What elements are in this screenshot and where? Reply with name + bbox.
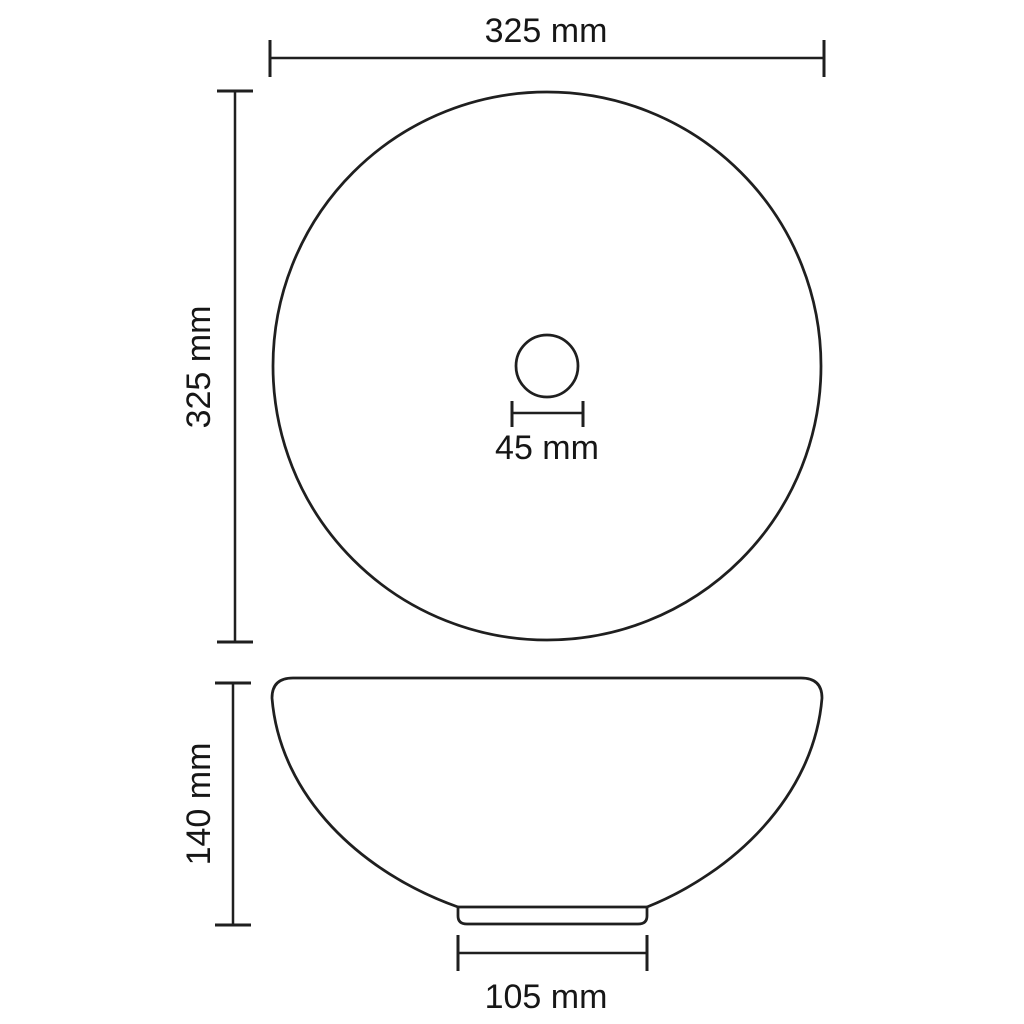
dimension-top-width: 325 mm (270, 12, 824, 77)
dimension-base-width: 105 mm (458, 935, 647, 1016)
dimension-drain: 45 mm (495, 401, 599, 467)
base-width-label: 105 mm (485, 978, 608, 1016)
side-view (272, 678, 822, 924)
drain-hole-circle (516, 335, 578, 397)
diagram-canvas: 325 mm 325 mm 45 mm 140 mm 1 (0, 0, 1024, 1024)
top-width-label: 325 mm (485, 12, 608, 50)
basin-rim-circle (273, 92, 821, 640)
washbasin-dimension-diagram: 325 mm 325 mm 45 mm 140 mm 1 (0, 0, 1024, 1024)
top-view (273, 92, 821, 640)
drain-label: 45 mm (495, 429, 599, 467)
basin-side-profile (272, 678, 822, 924)
left-height-label: 325 mm (180, 306, 218, 429)
dimension-side-height: 140 mm (180, 683, 251, 925)
side-height-label: 140 mm (180, 743, 218, 866)
dimension-left-height: 325 mm (180, 91, 253, 642)
